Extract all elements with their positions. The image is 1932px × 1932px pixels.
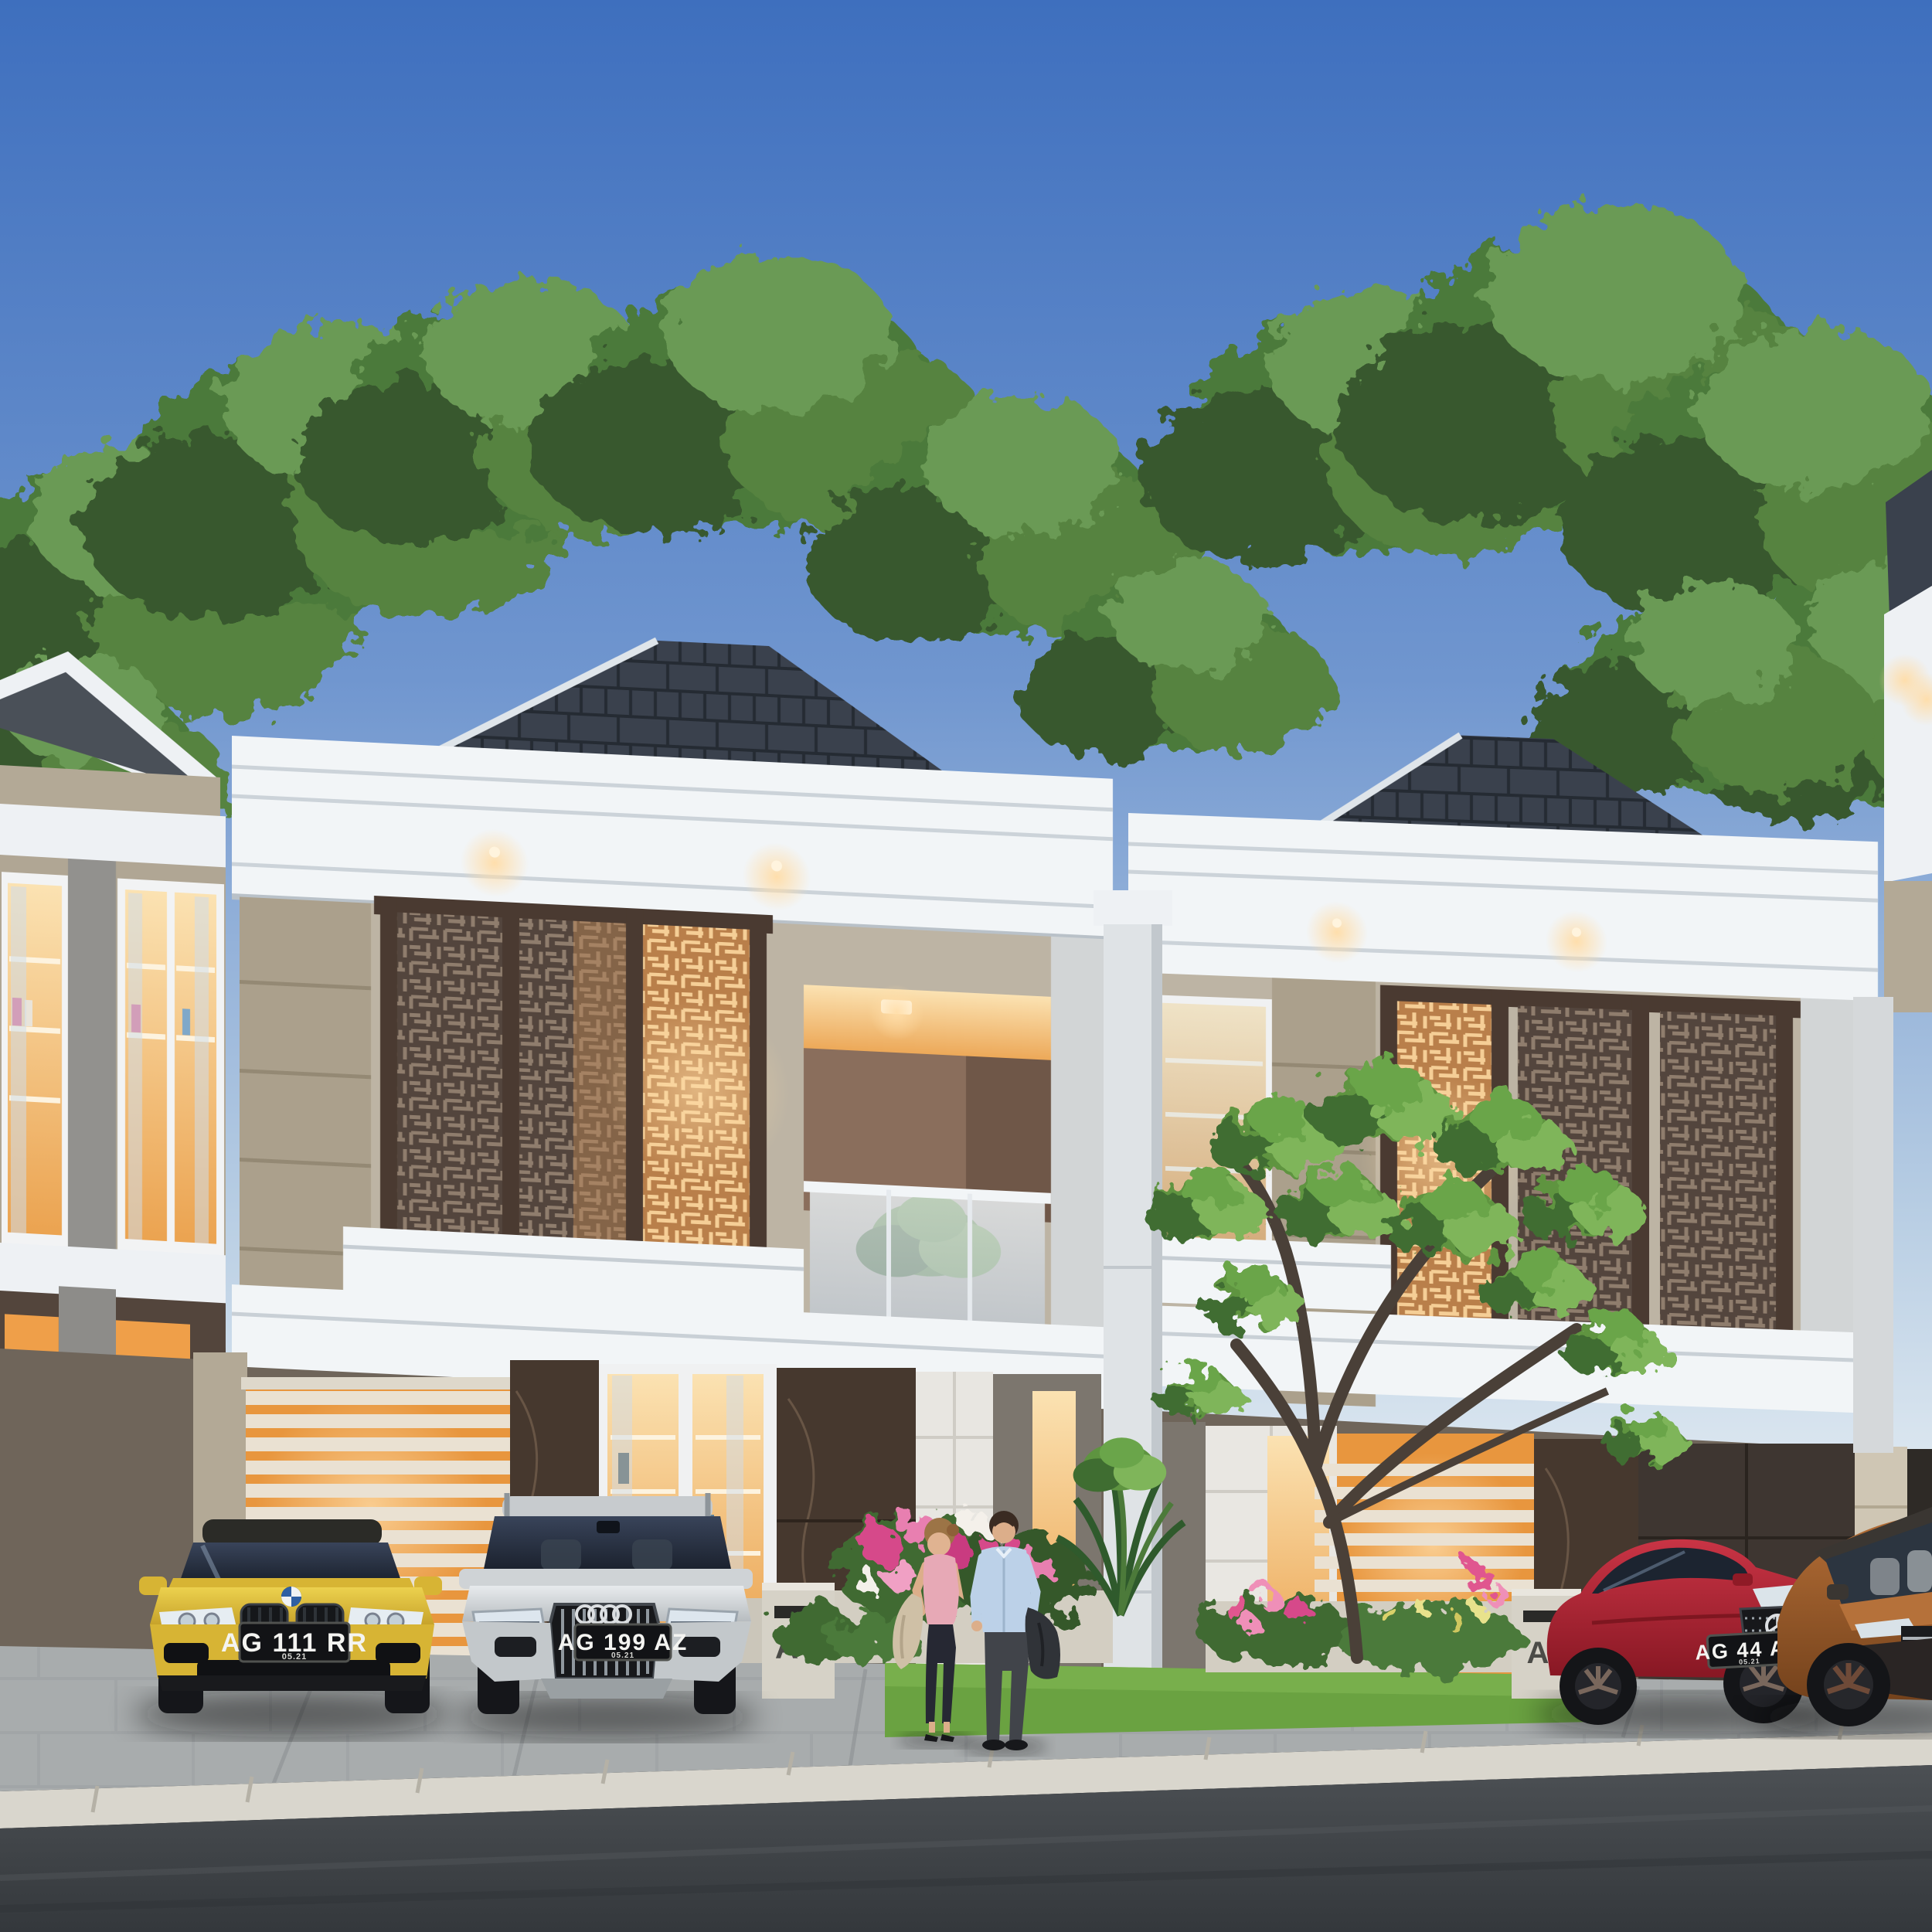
car-audi-silver: AG 199 AZ 05.21	[456, 1493, 757, 1739]
a7-lattice-screens	[374, 896, 790, 1264]
a7-recessed-balcony	[804, 980, 1051, 1331]
render-canvas: A 7 A 9	[0, 0, 1932, 1932]
woman-top	[923, 1554, 959, 1624]
left-window-1	[2, 872, 68, 1247]
suv-seat-2	[1907, 1550, 1932, 1592]
suv-mirror	[1827, 1584, 1849, 1600]
right-porch-pillar	[1853, 997, 1893, 1453]
left-mullion-pillar	[68, 859, 116, 1294]
bmw-roof	[202, 1519, 382, 1546]
audi-roof	[502, 1496, 713, 1519]
mercedes-plate-expiry: 05.21	[1739, 1657, 1760, 1665]
a9-sign-letter: A	[1527, 1636, 1549, 1670]
man-shoes	[982, 1740, 1005, 1750]
audi-skid-plate	[541, 1679, 672, 1699]
license-plate-bmw: AG 111 RR 05.21	[221, 1623, 368, 1662]
woman-face	[927, 1532, 951, 1556]
left-window-2	[117, 878, 224, 1255]
license-plate-audi: AG 199 AZ 05.21	[558, 1624, 689, 1660]
bmw-plate-expiry: 05.21	[282, 1652, 308, 1662]
mercedes-mirror	[1733, 1573, 1753, 1586]
audi-plate-expiry: 05.21	[611, 1651, 634, 1660]
a9-entablature	[1128, 813, 1878, 1001]
architectural-render: A 7 A 9	[0, 0, 1932, 1932]
suv-seat-1	[1870, 1558, 1900, 1595]
right-sliver-cornice	[1884, 586, 1932, 883]
